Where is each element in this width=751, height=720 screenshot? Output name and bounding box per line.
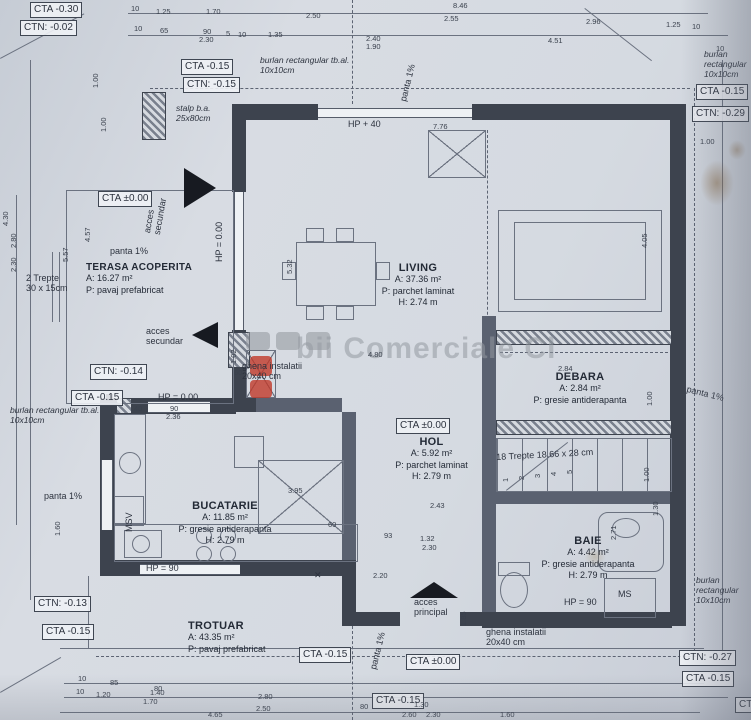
- dimension-label: 1.25: [156, 8, 171, 17]
- level-marker: CTA ±0.00: [406, 654, 460, 670]
- dimension-label: 10: [76, 688, 84, 697]
- room-area: A: 43.35 m²: [188, 632, 338, 644]
- annotation: panta 1%: [44, 491, 82, 501]
- level-marker: CTN: -0.14: [90, 364, 147, 380]
- room-height: H: 2.79 m: [374, 471, 489, 483]
- room-floor: P: gresie antiderapanta: [140, 524, 310, 536]
- annotation: MSV: [124, 512, 134, 532]
- dimension-label: 2.50: [306, 12, 321, 21]
- dimension-label: 10: [716, 45, 724, 54]
- annotation: HP = 90: [564, 597, 597, 607]
- room-height: H: 2.74 m: [348, 297, 488, 309]
- dimension-label: 2.43: [430, 502, 445, 511]
- level-marker: CTA ±0.00: [98, 191, 152, 207]
- level-marker: CTN: -0.27: [679, 650, 736, 666]
- dimension-label: 2.50: [256, 705, 271, 714]
- dimension-label: 2.55: [444, 15, 459, 24]
- room-label-baie: BAIE A: 4.42 m² P: gresie antiderapanta …: [508, 535, 668, 582]
- roof-overhang-line: [694, 88, 695, 656]
- room-label-bucatarie: BUCATARIE A: 11.85 m² P: gresie antidera…: [140, 500, 310, 547]
- level-marker: CTN: -0.29: [692, 106, 749, 122]
- room-height: H: 2.79 m: [140, 535, 310, 547]
- dimension-label: 2.80: [10, 233, 19, 248]
- dimension-label: 93: [384, 532, 392, 541]
- level-marker: CTA -0.15: [42, 624, 94, 640]
- annotation: ✕: [314, 570, 322, 580]
- room-area: A: 2.84 m²: [505, 383, 655, 395]
- dimension-label: 1.30: [414, 701, 429, 710]
- terrace-door: [234, 192, 244, 330]
- annotation: HP + 40: [348, 119, 381, 129]
- wall-segment: [496, 420, 672, 435]
- dimension-label: 60: [234, 369, 242, 378]
- room-floor: P: gresie antiderapanta: [505, 395, 655, 407]
- window: [318, 108, 472, 118]
- dimension-label: 1.85: [460, 611, 469, 626]
- dimension-label: 1.90: [366, 43, 381, 52]
- room-label-living: LIVING A: 37.36 m² P: parchet laminat H:…: [348, 262, 488, 309]
- annotation: burlan rectangular tb.al. 10x10cm: [260, 56, 349, 76]
- chair: [306, 306, 324, 320]
- annotation: panta 1%: [398, 63, 417, 102]
- dimension-label: 4.05: [641, 233, 650, 248]
- dimension-label: 4.80: [368, 351, 383, 360]
- dimension-label: 85: [110, 679, 118, 688]
- stain: [700, 160, 734, 206]
- fridge: [234, 436, 264, 468]
- annotation: HP = 0.00: [158, 392, 198, 402]
- acces-secundar-arrow: [192, 322, 218, 348]
- annotation: ghena instalatii 20x40 cm: [486, 627, 546, 648]
- watermark-logo-block: [246, 332, 270, 350]
- level-marker: CTN: -0.02: [20, 20, 77, 36]
- wall-segment: [356, 612, 400, 626]
- dimension-label: 2: [518, 476, 527, 480]
- skylight: [428, 130, 486, 178]
- roof-overhang-line: [96, 656, 696, 657]
- level-marker: CTA -0.15: [71, 390, 123, 406]
- watermark-logo-block: [276, 332, 300, 350]
- dimension-label: 80: [360, 703, 368, 712]
- annotation: burlan rectangular 10x10cm: [704, 50, 751, 79]
- chair: [336, 228, 354, 242]
- room-area: A: 4.42 m²: [508, 547, 668, 559]
- section-line: [352, 626, 353, 720]
- dimension-label: 1.00: [700, 138, 715, 147]
- dimension-label: 2.30: [199, 36, 214, 45]
- stove-burner: [220, 546, 236, 562]
- level-marker: CTA -0.15: [696, 84, 748, 100]
- room-area: A: 5.92 m²: [374, 448, 489, 460]
- dimension-label: 1: [502, 478, 511, 482]
- dimension-line: [128, 35, 728, 36]
- room-title: DEBARA: [505, 371, 655, 383]
- dimension-label: 1.60: [500, 711, 515, 720]
- dimension-label: 5.32: [286, 259, 295, 274]
- dimension-label: 10: [692, 23, 700, 32]
- room-label-hol: HOL A: 5.92 m² P: parchet laminat H: 2.7…: [374, 436, 489, 483]
- wall-segment: [472, 104, 686, 120]
- room-floor: P: pavaj prefabricat: [86, 285, 216, 297]
- column-stalp: [142, 92, 166, 140]
- wall-segment: [496, 492, 670, 504]
- dimension-label: 2.71: [610, 525, 619, 540]
- annotation: acces principal: [414, 597, 448, 618]
- dimension-label: 2.30: [426, 711, 441, 720]
- dimension-label: 2.30: [422, 544, 437, 553]
- level-marker: CTN: -0.13: [34, 596, 91, 612]
- dimension-label: 40: [134, 405, 142, 414]
- dimension-label: 2.96: [586, 18, 601, 27]
- dimension-label: 4.57: [84, 227, 93, 242]
- stove-burner: [196, 546, 212, 562]
- section-line: [352, 0, 353, 104]
- level-marker: CTA ±0.00: [396, 418, 450, 434]
- annotation: HP = 90: [146, 563, 179, 573]
- room-title: BUCATARIE: [140, 500, 310, 512]
- dimension-label: 5.57: [62, 247, 71, 262]
- dimension-label: 1.35: [268, 31, 283, 40]
- chair: [306, 228, 324, 242]
- dimension-label: 1.00: [643, 467, 652, 482]
- annotation: stalp b.a. 25x80cm: [176, 104, 211, 124]
- room-title: HOL: [374, 436, 489, 448]
- level-marker: CTA -0.15: [735, 697, 751, 713]
- dimension-label: 2.20: [373, 572, 388, 581]
- room-title: TROTUAR: [188, 620, 338, 632]
- annotation: panta 1%: [110, 246, 148, 256]
- dimension-label: 2.30: [10, 257, 19, 272]
- room-title: BAIE: [508, 535, 668, 547]
- level-marker: CTA -0.15: [181, 59, 233, 75]
- level-marker: CTA -0.15: [682, 671, 734, 687]
- dimension-label: 1.70: [143, 698, 158, 707]
- room-floor: P: parchet laminat: [374, 460, 489, 472]
- annotation: HP = 0.00: [214, 222, 224, 262]
- sink-bowl: [119, 452, 141, 474]
- room-area: A: 37.36 m²: [348, 274, 488, 286]
- dimension-label: 10: [238, 31, 246, 40]
- dimension-label: 65: [160, 27, 168, 36]
- annotation: ghena instalatii 20x40 cm: [242, 361, 302, 382]
- dimension-label: 1.00: [646, 391, 655, 406]
- dimension-label: 60: [328, 521, 336, 530]
- room-label-terasa: TERASA ACOPERITA A: 16.27 m² P: pavaj pr…: [86, 262, 216, 296]
- room-height: H: 2.79 m: [508, 570, 668, 582]
- acces-secundar-arrow: [184, 168, 216, 208]
- dimension-label: 10: [78, 675, 86, 684]
- dimension-label: 5: [566, 470, 575, 474]
- room-title: LIVING: [348, 262, 488, 274]
- dimension-label: 1.00: [100, 117, 109, 132]
- watermark-text: bii Comerciale Cl: [296, 332, 556, 366]
- dimension-label: 10: [134, 25, 142, 34]
- wall-segment: [232, 120, 246, 192]
- stain: [728, 140, 746, 160]
- leader-line: [0, 657, 61, 693]
- dimension-label: 3: [534, 474, 543, 478]
- dimension-label: 2.80: [258, 693, 273, 702]
- dimension-label: 8.46: [453, 2, 468, 11]
- dimension-label: 2.60: [402, 711, 417, 720]
- dimension-label: 4.51: [548, 37, 563, 46]
- annotation: burlan rectangular 10x10cm: [696, 576, 751, 605]
- dimension-label: 1.30: [652, 501, 661, 516]
- dimension-label: 4.30: [2, 211, 11, 226]
- acces-principal-arrow: [410, 582, 458, 598]
- dimension-label: 1.60: [54, 521, 63, 536]
- annotation: 2 Trepte 30 x 15cm: [26, 273, 68, 294]
- wall-segment: [342, 560, 356, 626]
- wall-segment: [232, 104, 318, 120]
- dimension-label: 1.25: [666, 21, 681, 30]
- dimension-line: [60, 712, 700, 713]
- property-line: [30, 60, 31, 600]
- watermark-logo-block-red: [250, 380, 272, 398]
- staircase: [496, 438, 672, 492]
- dimension-label: 3.95: [288, 487, 303, 496]
- dimension-label: 7.76: [433, 123, 448, 132]
- annotation: panta 1%: [368, 631, 387, 670]
- level-marker: CTA -0.30: [30, 2, 82, 18]
- room-label-debara: DEBARA A: 2.84 m² P: gresie antiderapant…: [505, 371, 655, 406]
- room-area: A: 16.27 m²: [86, 273, 216, 285]
- dimension-label: 4: [550, 472, 559, 476]
- level-marker: CTA -0.15: [299, 647, 351, 663]
- level-marker: CTN: -0.15: [183, 77, 240, 93]
- floor-plan-sheet: bii Comerciale Cl LIVING A: 37.36 m² P: …: [0, 0, 751, 720]
- annotation: panta 1%: [685, 384, 724, 403]
- dimension-label: 4.65: [208, 711, 223, 720]
- room-floor: P: gresie antiderapanta: [508, 559, 668, 571]
- annotation: burlan rectangular tb.al. 10x10cm: [10, 406, 99, 426]
- room-floor: P: parchet laminat: [348, 286, 488, 298]
- room-area: A: 11.85 m²: [140, 512, 310, 524]
- annotation: acces secundar: [146, 326, 183, 347]
- annotation: MS: [618, 589, 632, 599]
- dimension-line: [722, 60, 723, 652]
- dimension-label: 2.84: [558, 365, 573, 374]
- wall-segment: [670, 104, 686, 626]
- watermark-logo-block: [306, 332, 330, 350]
- dimension-label: 10: [131, 5, 139, 14]
- window: [101, 460, 113, 530]
- dimension-label: 5: [226, 30, 230, 39]
- dimension-label: 1.02: [230, 349, 239, 364]
- dimension-label: 1.00: [92, 73, 101, 88]
- living-rug-inner: [514, 222, 646, 300]
- dimension-label: 1.20: [96, 691, 111, 700]
- dimension-label: 1.70: [206, 8, 221, 17]
- dimension-label: 2.36: [166, 413, 181, 422]
- room-title: TERASA ACOPERITA: [86, 262, 216, 273]
- wall-segment: [256, 398, 342, 412]
